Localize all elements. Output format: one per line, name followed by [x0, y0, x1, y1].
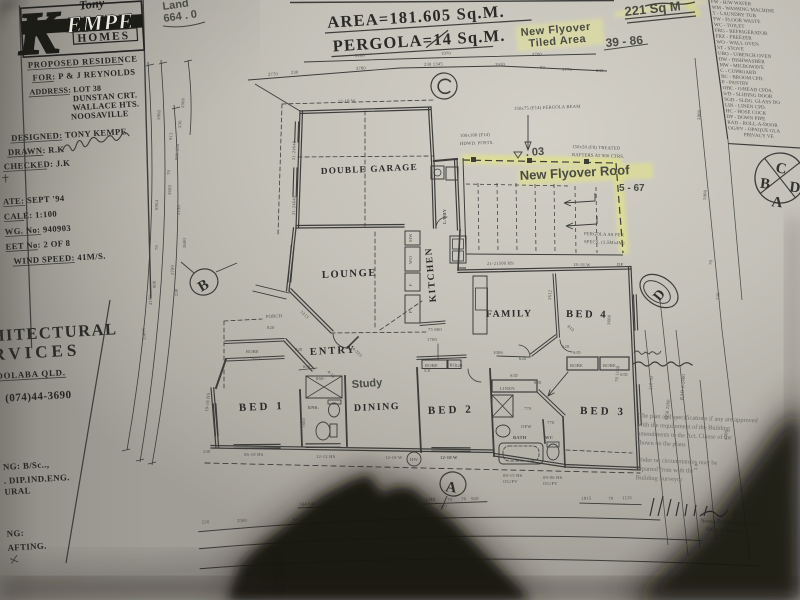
svg-text:2612: 2612: [547, 289, 553, 300]
svg-text:7800: 7800: [301, 417, 306, 428]
svg-text:90: 90: [540, 65, 545, 70]
svg-text:OFW: OFW: [521, 424, 532, 429]
svg-text:3780: 3780: [356, 65, 367, 71]
svg-text:FAMILY: FAMILY: [486, 308, 533, 320]
svg-text:BED 2: BED 2: [428, 403, 474, 417]
svg-text:LINEN: LINEN: [500, 386, 515, 391]
svg-text:2800: 2800: [696, 109, 702, 120]
svg-text:BED 3: BED 3: [580, 405, 626, 418]
svg-text:21-24640: 21-24640: [291, 195, 297, 215]
svg-text:920: 920: [471, 496, 479, 501]
svg-text:70: 70: [447, 497, 453, 502]
svg-text:620: 620: [519, 356, 527, 361]
svg-text:DP: DP: [617, 262, 624, 267]
svg-text:21-21500 HS: 21-21500 HS: [487, 261, 514, 266]
svg-text:8964: 8964: [154, 199, 159, 210]
svg-text:12-12 HS: 12-12 HS: [316, 454, 336, 459]
svg-text:B: B: [759, 176, 771, 193]
svg-text:BC: BC: [450, 363, 457, 368]
svg-text:21-24640: 21-24640: [291, 140, 297, 160]
svg-text:4100: 4100: [147, 294, 153, 305]
svg-text:5800: 5800: [156, 109, 162, 120]
svg-text:12-18 W: 12-18 W: [338, 98, 356, 104]
svg-text:BED 4: BED 4: [566, 309, 608, 321]
svg-text:1006: 1006: [493, 350, 503, 355]
svg-text:NG:: NG:: [6, 528, 24, 539]
svg-text:18-18 W: 18-18 W: [573, 262, 591, 267]
svg-text:ROBE: ROBE: [425, 363, 438, 368]
svg-text:. 03: . 03: [525, 146, 544, 159]
svg-text:813: 813: [168, 132, 174, 140]
svg-text:860-: 860-: [316, 376, 325, 381]
svg-text:Study: Study: [351, 377, 383, 391]
svg-text:230: 230: [596, 68, 604, 73]
svg-text:2700: 2700: [170, 264, 175, 275]
svg-text:230: 230: [203, 449, 211, 454]
svg-text:70: 70: [461, 496, 467, 501]
svg-text:820: 820: [534, 380, 542, 385]
svg-text:06-18 HS: 06-18 HS: [244, 452, 264, 457]
svg-text:70: 70: [708, 259, 713, 265]
svg-text:BED 1: BED 1: [239, 400, 285, 414]
svg-text:URAL: URAL: [4, 485, 31, 496]
svg-text:770: 770: [547, 420, 555, 425]
svg-text:D: D: [789, 179, 800, 196]
svg-text:4700: 4700: [532, 52, 543, 57]
svg-text:OG/PV: OG/PV: [503, 479, 518, 484]
svg-text:S/D: S/D: [510, 373, 518, 378]
svg-text:70: 70: [608, 496, 614, 501]
svg-text:70: 70: [154, 245, 159, 250]
svg-text:BATH: BATH: [513, 435, 527, 440]
svg-text:3770: 3770: [562, 67, 572, 72]
svg-text:3600: 3600: [182, 237, 187, 248]
svg-text:900: 900: [152, 280, 157, 288]
svg-text:2770: 2770: [268, 71, 279, 77]
svg-text:S/D: S/D: [620, 372, 628, 377]
svg-text:2150: 2150: [176, 204, 181, 215]
svg-text:C: C: [775, 160, 788, 177]
svg-text:S/D: S/D: [252, 356, 260, 361]
svg-text:2000: 2000: [180, 97, 186, 108]
svg-text:12-18 W: 12-18 W: [440, 455, 458, 460]
svg-text:1815: 1815: [581, 496, 592, 501]
svg-text:ROBE: ROBE: [570, 363, 583, 368]
svg-text:ENS.: ENS.: [308, 405, 319, 410]
svg-text:A: A: [771, 194, 784, 211]
svg-text:820: 820: [267, 325, 275, 330]
svg-text:ROBE: ROBE: [603, 363, 616, 368]
svg-text:ROBE: ROBE: [246, 349, 259, 354]
svg-text:75 800: 75 800: [428, 327, 442, 332]
svg-text:09-06 HS: 09-06 HS: [543, 475, 563, 480]
svg-text:WC: WC: [545, 435, 553, 440]
svg-text:WO: WO: [408, 255, 413, 264]
svg-text:100x100 (F14): 100x100 (F14): [460, 132, 490, 138]
svg-text:L/DRY: L/DRY: [442, 208, 447, 224]
svg-text:3500: 3500: [237, 518, 248, 523]
svg-text:3930: 3930: [495, 62, 506, 67]
svg-text:OG/PV: OG/PV: [543, 481, 558, 486]
svg-text:DINING: DINING: [354, 401, 401, 414]
svg-text:70: 70: [166, 169, 171, 175]
svg-text:1700: 1700: [427, 337, 437, 342]
svg-text:230: 230: [715, 292, 721, 300]
svg-text:F: F: [408, 283, 413, 286]
svg-text:230: 230: [174, 288, 179, 296]
svg-text:PORCH: PORCH: [266, 313, 283, 319]
svg-text:230 1345: 230 1345: [424, 61, 443, 67]
svg-text:9180: 9180: [355, 52, 366, 58]
svg-text:220: 220: [202, 519, 210, 524]
svg-text:230: 230: [177, 120, 183, 128]
svg-text:S/D: S/D: [573, 350, 581, 355]
svg-text:12-18 W: 12-18 W: [385, 455, 403, 460]
svg-text:5800: 5800: [702, 189, 708, 200]
svg-text:5 - 67: 5 - 67: [619, 183, 645, 194]
svg-text:HW: HW: [410, 457, 419, 462]
svg-text:230: 230: [291, 69, 299, 75]
svg-text:620: 620: [562, 344, 570, 349]
svg-text:MW: MW: [408, 233, 413, 242]
svg-text:820: 820: [455, 363, 463, 368]
svg-text:1970: 1970: [441, 51, 452, 56]
svg-text:770: 770: [524, 406, 532, 411]
svg-text:1115: 1115: [622, 495, 632, 500]
svg-text:3600: 3600: [167, 184, 172, 195]
svg-text:09-15 HS: 09-15 HS: [503, 473, 523, 478]
